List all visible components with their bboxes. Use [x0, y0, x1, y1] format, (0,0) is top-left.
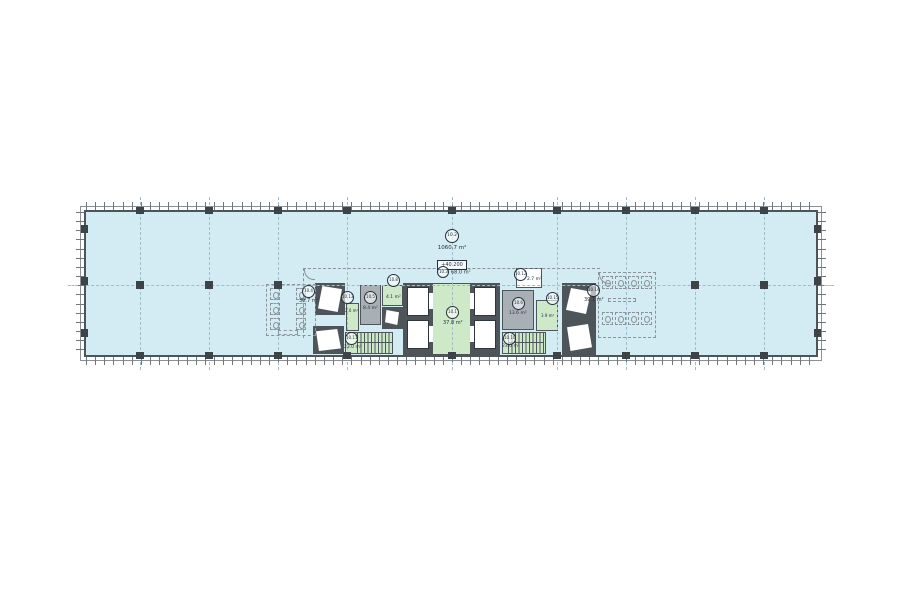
facade-tick	[223, 202, 224, 210]
facade-tick	[123, 202, 124, 210]
facade-tick	[159, 357, 160, 365]
facade-tick	[425, 357, 426, 365]
facade-tick	[644, 202, 645, 210]
facade-tick	[818, 313, 826, 314]
facade-tick	[223, 357, 224, 365]
facade-tick	[333, 357, 334, 365]
grid-line	[140, 362, 141, 370]
facade-tick	[388, 202, 389, 210]
facade-tick	[159, 202, 160, 210]
grid-line	[278, 362, 279, 370]
column	[205, 352, 213, 359]
column	[814, 329, 821, 337]
grid-line	[86, 285, 816, 286]
grid-line	[209, 197, 210, 205]
facade-tick	[443, 202, 444, 210]
room-area: 23.0 m²	[344, 345, 362, 351]
column	[691, 207, 699, 214]
wc-stall	[296, 303, 306, 315]
facade-tick	[791, 202, 792, 210]
facade-tick	[516, 357, 517, 365]
facade-tick	[717, 357, 718, 365]
facade-tick	[479, 202, 480, 210]
facade-tick	[425, 202, 426, 210]
facade-tick	[699, 357, 700, 365]
grid-line	[347, 197, 348, 205]
column	[343, 352, 351, 359]
facade-tick	[324, 357, 325, 365]
facade-tick	[76, 267, 84, 268]
room-area: 2.0 m²	[345, 308, 358, 314]
facade-tick	[772, 202, 773, 210]
facade-tick	[351, 357, 352, 365]
column	[760, 352, 768, 359]
room-id-badge: 10.13	[341, 291, 354, 304]
room-id-badge: 10.11	[345, 332, 358, 345]
facade-tick	[699, 202, 700, 210]
grid-line	[452, 362, 453, 370]
column	[760, 207, 768, 214]
floor-label-group: 10.2 1060.7 m² +40.200	[424, 221, 480, 270]
facade-tick	[370, 357, 371, 365]
facade-tick	[754, 357, 755, 365]
facade-tick	[76, 304, 84, 305]
facade-tick	[608, 357, 609, 365]
elevator-car	[474, 287, 496, 316]
facade-tick	[287, 357, 288, 365]
facade-tick	[351, 202, 352, 210]
facade-tick	[187, 357, 188, 365]
corridor-label-group: 10.3 68.0 m²	[424, 266, 484, 278]
floor-plan: 10.2 1060.7 m² +40.200 10.3 68.0 m² 10.1…	[0, 0, 900, 604]
elevator-car	[407, 287, 429, 316]
facade-tick	[544, 357, 545, 365]
facade-tick	[470, 202, 471, 210]
facade-tick	[242, 357, 243, 365]
facade-tick	[113, 357, 114, 365]
facade-tick	[76, 212, 84, 213]
facade-tick	[809, 202, 810, 210]
facade-tick	[113, 202, 114, 210]
grid-line	[557, 362, 558, 370]
facade-tick	[415, 202, 416, 210]
facade-tick	[589, 357, 590, 365]
facade-tick	[379, 357, 380, 365]
facade-tick	[818, 322, 826, 323]
facade-tick	[196, 357, 197, 365]
facade-tick	[736, 357, 737, 365]
facade-tick	[168, 202, 169, 210]
facade-tick	[809, 357, 810, 365]
facade-tick	[260, 202, 261, 210]
facade-tick	[76, 313, 84, 314]
facade-tick	[534, 202, 535, 210]
facade-tick	[76, 294, 84, 295]
column	[81, 225, 88, 233]
column	[81, 329, 88, 337]
column	[448, 207, 456, 214]
column	[553, 207, 561, 214]
facade-tick	[727, 357, 728, 365]
column	[205, 281, 213, 289]
duct-opening	[567, 324, 592, 351]
facade-tick	[562, 202, 563, 210]
elevator-door	[470, 326, 474, 342]
facade-tick	[269, 357, 270, 365]
facade-tick	[168, 357, 169, 365]
room-area: 30.7 m²	[299, 298, 319, 304]
grid-line	[626, 197, 627, 205]
facade-tick	[489, 202, 490, 210]
floor-id-badge: 10.2	[445, 229, 459, 243]
column	[814, 225, 821, 233]
grid-line	[695, 197, 696, 205]
facade-tick	[443, 357, 444, 365]
wc-stall	[615, 312, 626, 325]
grid-line	[452, 197, 453, 205]
room-id-badge: 10.5	[364, 291, 377, 304]
facade-tick	[589, 202, 590, 210]
grid-line	[140, 197, 141, 205]
facade-tick	[745, 202, 746, 210]
grid-line	[68, 285, 78, 286]
facade-tick	[123, 357, 124, 365]
facade-tick	[415, 357, 416, 365]
facade-tick	[571, 357, 572, 365]
facade-tick	[800, 202, 801, 210]
facade-tick	[287, 202, 288, 210]
wc-stall	[602, 312, 613, 325]
facade-tick	[196, 202, 197, 210]
facade-tick	[434, 202, 435, 210]
facade-tick	[379, 202, 380, 210]
room-id-badge: 10.12	[514, 268, 527, 281]
facade-tick	[388, 357, 389, 365]
facade-tick	[672, 357, 673, 365]
room-id-badge: 10.14	[587, 284, 600, 297]
facade-tick	[800, 357, 801, 365]
facade-tick	[617, 357, 618, 365]
facade-tick	[571, 202, 572, 210]
grid-line	[626, 362, 627, 370]
grid-line	[695, 362, 696, 370]
grid-line	[347, 362, 348, 370]
facade-tick	[681, 202, 682, 210]
facade-tick	[818, 267, 826, 268]
facade-tick	[525, 357, 526, 365]
facade-tick	[791, 357, 792, 365]
facade-tick	[544, 202, 545, 210]
facade-tick	[251, 357, 252, 365]
facade-tick	[104, 357, 105, 365]
facade-tick	[86, 202, 87, 210]
wc-stall	[641, 312, 652, 325]
column	[274, 352, 282, 359]
wc-stall	[270, 318, 280, 330]
room-id-badge: 10.1	[446, 306, 459, 319]
facade-tick	[736, 202, 737, 210]
facade-tick	[406, 202, 407, 210]
room-area: 13.6 m²	[509, 311, 527, 317]
column	[343, 207, 351, 214]
facade-tick	[525, 202, 526, 210]
facade-tick	[818, 258, 826, 259]
facade-tick	[260, 357, 261, 365]
facade-tick	[150, 357, 151, 365]
room-id-badge: 10.3	[437, 266, 449, 278]
facade-tick	[717, 202, 718, 210]
facade-tick	[306, 202, 307, 210]
facade-tick	[333, 202, 334, 210]
facade-tick	[76, 258, 84, 259]
facade-tick	[296, 357, 297, 365]
room-id-badge: 10.8	[387, 274, 400, 287]
room-id-badge: 10.4	[302, 285, 315, 298]
facade-tick	[242, 202, 243, 210]
column	[81, 277, 88, 285]
room-area: 37.8 m²	[443, 320, 463, 326]
column	[205, 207, 213, 214]
column	[136, 207, 144, 214]
grid-line	[278, 197, 279, 205]
facade-tick	[269, 202, 270, 210]
facade-tick	[306, 357, 307, 365]
stair-treads-left	[357, 333, 392, 353]
column	[274, 207, 282, 214]
elevator-door	[470, 293, 474, 309]
facade-tick	[479, 357, 480, 365]
column	[622, 352, 630, 359]
facade-tick	[818, 221, 826, 222]
facade-tick	[662, 202, 663, 210]
facade-tick	[104, 202, 105, 210]
facade-tick	[598, 357, 599, 365]
facade-tick	[489, 357, 490, 365]
facade-tick	[781, 202, 782, 210]
facade-tick	[653, 357, 654, 365]
facade-tick	[406, 357, 407, 365]
facade-tick	[397, 202, 398, 210]
facade-tick	[132, 357, 133, 365]
room-id-badge: 10.15	[546, 292, 559, 305]
wc-stall	[296, 318, 306, 330]
facade-tick	[76, 249, 84, 250]
facade-tick	[580, 202, 581, 210]
column	[691, 281, 699, 289]
facade-tick	[324, 202, 325, 210]
facade-tick	[76, 322, 84, 323]
facade-tick	[95, 202, 96, 210]
duct-opening	[318, 286, 342, 312]
wc-stall	[641, 276, 652, 289]
column	[691, 352, 699, 359]
column	[814, 277, 821, 285]
column	[136, 281, 144, 289]
facade-tick	[470, 357, 471, 365]
wc-sink	[608, 298, 636, 302]
room-area: 68.0 m²	[451, 270, 471, 276]
facade-tick	[315, 357, 316, 365]
facade-tick	[296, 202, 297, 210]
wc-sink	[278, 330, 298, 335]
facade-tick	[498, 357, 499, 365]
grid-line	[764, 362, 765, 370]
grid-line	[764, 197, 765, 205]
facade-tick	[178, 202, 179, 210]
column	[760, 281, 768, 289]
facade-tick	[727, 202, 728, 210]
wc-stall	[270, 303, 280, 315]
facade-tick	[397, 357, 398, 365]
room-area: 8.4 m²	[363, 306, 378, 312]
facade-tick	[76, 349, 84, 350]
facade-tick	[361, 357, 362, 365]
duct-opening	[316, 329, 341, 351]
column	[274, 281, 282, 289]
column	[136, 352, 144, 359]
grid-line	[626, 212, 627, 355]
elevator-car	[474, 320, 496, 349]
room-area: 39.1 m²	[584, 297, 604, 303]
facade-tick	[214, 357, 215, 365]
duct-opening	[385, 310, 399, 325]
facade-tick	[150, 202, 151, 210]
wc-stall	[602, 276, 613, 289]
facade-tick	[534, 357, 535, 365]
facade-tick	[708, 357, 709, 365]
facade-tick	[772, 357, 773, 365]
facade-tick	[818, 340, 826, 341]
facade-tick	[498, 202, 499, 210]
grid-line	[824, 285, 834, 286]
facade-tick	[214, 202, 215, 210]
facade-tick	[754, 202, 755, 210]
facade-tick	[608, 202, 609, 210]
facade-tick	[132, 202, 133, 210]
room-service-right	[502, 290, 534, 330]
shaft-left-bottom	[313, 326, 344, 354]
grid-line	[557, 197, 558, 205]
facade-tick	[86, 357, 87, 365]
facade-tick	[507, 357, 508, 365]
column	[448, 352, 456, 359]
facade-tick	[745, 357, 746, 365]
facade-tick	[644, 357, 645, 365]
facade-tick	[708, 202, 709, 210]
facade-tick	[434, 357, 435, 365]
facade-tick	[818, 239, 826, 240]
facade-tick	[461, 202, 462, 210]
facade-tick	[818, 212, 826, 213]
facade-tick	[818, 294, 826, 295]
facade-tick	[516, 202, 517, 210]
facade-tick	[187, 202, 188, 210]
facade-tick	[361, 202, 362, 210]
facade-tick	[232, 202, 233, 210]
facade-tick	[178, 357, 179, 365]
facade-tick	[461, 357, 462, 365]
facade-tick	[635, 202, 636, 210]
facade-tick	[598, 202, 599, 210]
column	[553, 352, 561, 359]
facade-tick	[315, 202, 316, 210]
facade-tick	[818, 249, 826, 250]
wc-stall	[628, 276, 639, 289]
column	[622, 207, 630, 214]
wc-stall	[628, 312, 639, 325]
facade-tick	[95, 357, 96, 365]
grid-line	[209, 362, 210, 370]
stair-divider-left	[357, 342, 392, 343]
facade-tick	[562, 357, 563, 365]
facade-tick	[818, 304, 826, 305]
facade-tick	[76, 221, 84, 222]
facade-tick	[580, 357, 581, 365]
room-area: 4.1 m²	[386, 295, 401, 301]
facade-tick	[76, 239, 84, 240]
facade-tick	[818, 349, 826, 350]
facade-tick	[781, 357, 782, 365]
facade-tick	[370, 202, 371, 210]
facade-tick	[635, 357, 636, 365]
wc-stall	[270, 288, 280, 300]
room-id-badge: 10.6	[512, 297, 525, 310]
facade-tick	[251, 202, 252, 210]
facade-tick	[76, 340, 84, 341]
shaft-left-mid	[382, 307, 403, 329]
facade-tick	[672, 202, 673, 210]
facade-tick	[507, 202, 508, 210]
facade-tick	[662, 357, 663, 365]
grid-line	[557, 212, 558, 355]
wc-stall	[615, 276, 626, 289]
facade-tick	[617, 202, 618, 210]
room-area: 3.9 m²	[541, 313, 554, 319]
room-area: 2.7 m²	[527, 277, 542, 283]
facade-tick	[232, 357, 233, 365]
elevator-car	[407, 320, 429, 349]
room-area: 23.0 m²	[502, 344, 520, 350]
facade-tick	[653, 202, 654, 210]
floor-area: 1060.7 m²	[424, 245, 480, 251]
facade-tick	[681, 357, 682, 365]
